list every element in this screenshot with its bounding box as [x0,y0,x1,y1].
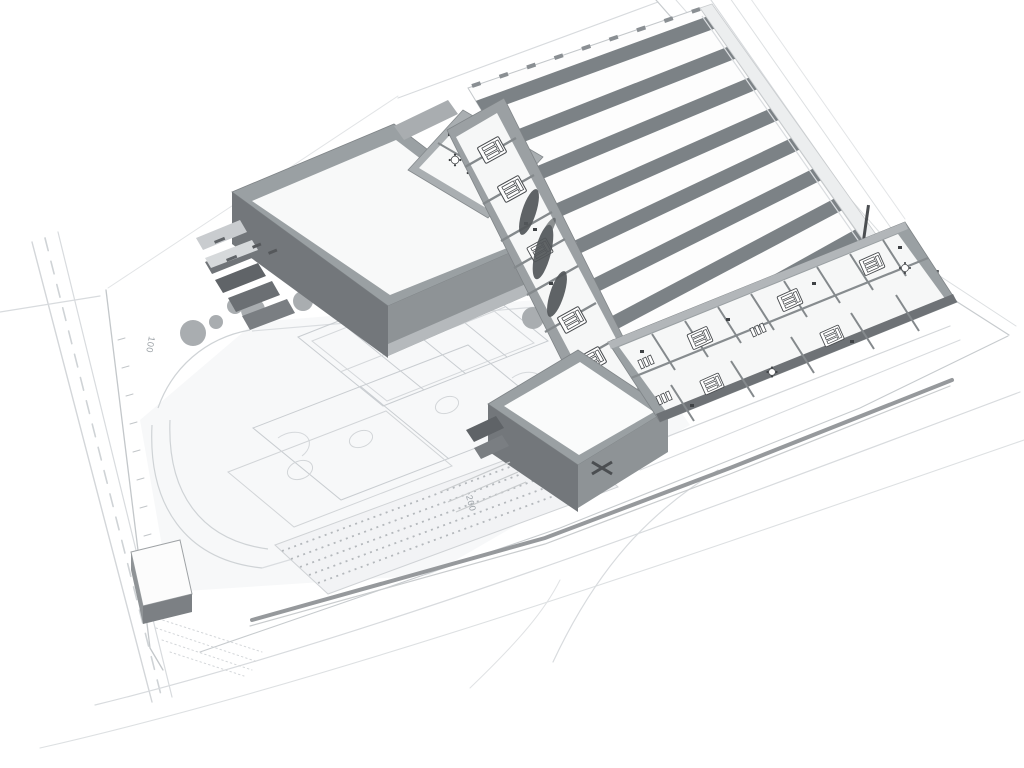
tree [180,320,206,346]
road-left-edge [32,242,152,702]
tree [209,315,223,329]
track-marker-100: 100 [144,336,157,354]
road-left-centerline [45,238,162,699]
road-branch2 [470,580,560,688]
architectural-site-rendering: 050 100 150 200 [0,0,1024,768]
plaza-hatch [150,616,262,676]
site-plan-svg: 050 100 150 200 [0,0,1024,768]
